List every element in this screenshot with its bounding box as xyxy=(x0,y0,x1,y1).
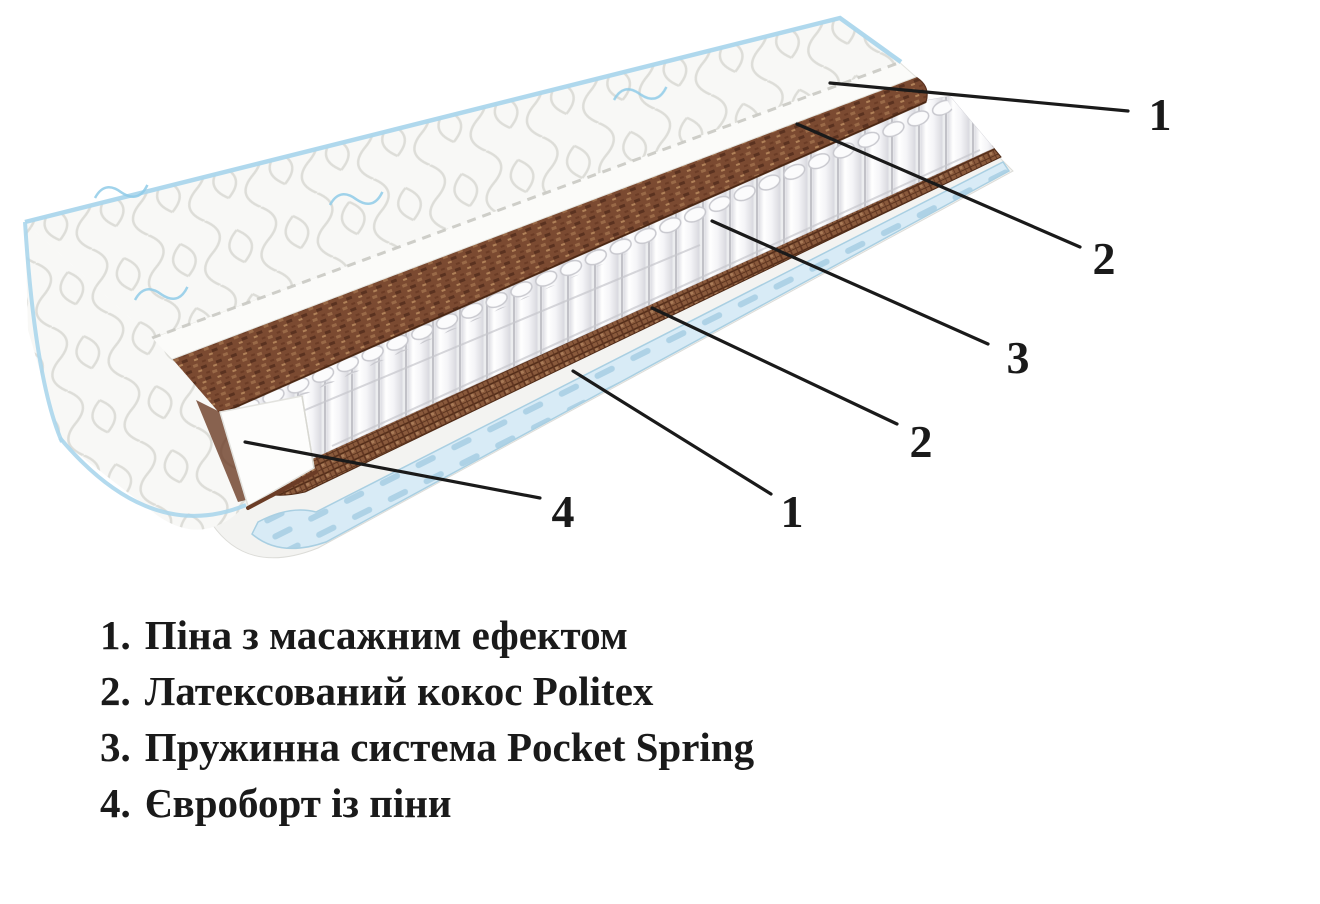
callout-number-euro-border: 4 xyxy=(552,486,575,537)
legend-number: 2. xyxy=(100,668,131,714)
legend-item-foam-top: 1.Піна з масажним ефектом xyxy=(100,607,754,663)
legend-number: 4. xyxy=(100,780,131,826)
legend-label: Піна з масажним ефектом xyxy=(145,612,628,658)
legend-label: Євроборт із піни xyxy=(145,780,452,826)
legend-item-euro-border: 4.Євроборт із піни xyxy=(100,775,754,831)
mattress-structure-figure: 1 2 3 2 1 4 1.Піна з масажним ефектом 2.… xyxy=(0,0,1320,904)
callout-number-spring-system: 3 xyxy=(1007,332,1030,383)
legend-label: Латексований кокос Politex xyxy=(145,668,654,714)
callout-number-foam-top: 1 xyxy=(1149,89,1172,140)
legend-item-springs: 3.Пружинна система Pocket Spring xyxy=(100,719,754,775)
callout-line-foam-bottom xyxy=(573,371,771,494)
callout-number-coconut-bottom: 2 xyxy=(910,416,933,467)
callout-number-foam-bottom: 1 xyxy=(781,486,804,537)
layer-legend: 1.Піна з масажним ефектом 2.Латексований… xyxy=(100,607,754,831)
legend-number: 1. xyxy=(100,612,131,658)
callout-line-coconut-bottom xyxy=(652,308,897,424)
legend-number: 3. xyxy=(100,724,131,770)
callout-number-coconut-top: 2 xyxy=(1093,233,1116,284)
legend-label: Пружинна система Pocket Spring xyxy=(145,724,754,770)
legend-item-coconut: 2.Латексований кокос Politex xyxy=(100,663,754,719)
